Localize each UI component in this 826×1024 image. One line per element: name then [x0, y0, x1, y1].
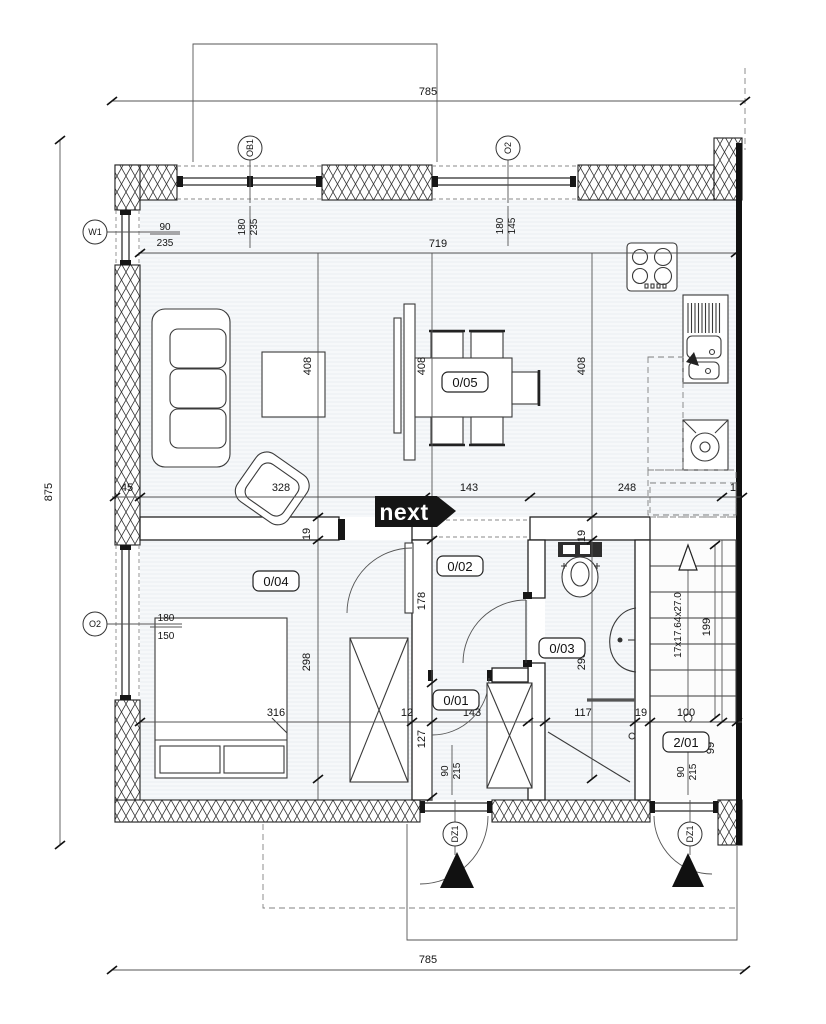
window-o2-left [116, 545, 139, 700]
chair [471, 332, 503, 359]
dim-ob1-w: 180 [237, 218, 248, 235]
dim-overall-bottom: 785 [419, 954, 437, 966]
next-logo-text: next [379, 499, 428, 525]
room-label-stairs: 2/01 [673, 735, 698, 750]
kitchen-sink [683, 295, 728, 383]
dim-overall-top: 785 [419, 86, 437, 98]
door-sill-dz1-main [420, 801, 492, 813]
sofa [152, 309, 230, 467]
dim-ob1-h: 235 [249, 218, 260, 235]
entrance-arrow-main [440, 852, 474, 888]
room-label-bathroom: 0/03 [549, 641, 574, 656]
entrance-arrow-stairs [672, 853, 704, 887]
room-label-hall: 0/01 [443, 693, 468, 708]
dim-12: 12 [401, 707, 413, 719]
chair [471, 417, 503, 444]
dim-w1-h: 235 [157, 238, 174, 249]
dim-depth-2: 408 [416, 357, 428, 375]
dim-wall-19-b: 19 [576, 530, 588, 542]
dim-interior-width: 719 [429, 238, 447, 250]
terrace-outline-top [193, 44, 437, 162]
room-label-living: 0/05 [452, 375, 477, 390]
hall-wardrobe [487, 683, 532, 788]
door-sill-dz1-stairs [650, 801, 718, 813]
tag-w1: W1 [88, 227, 102, 237]
chair [431, 332, 463, 359]
dim-o2-left-h: 150 [158, 631, 175, 642]
dim-19-bath: 19 [635, 707, 647, 719]
dim-100: 100 [677, 707, 695, 719]
dim-19-end: 19 [730, 482, 742, 494]
bed [155, 618, 287, 778]
dim-dz1-stairs-w: 90 [676, 766, 687, 778]
dim-depth-3: 408 [576, 357, 588, 375]
dim-overall-left: 875 [43, 483, 55, 501]
room-label-bedroom: 0/04 [263, 574, 288, 589]
tag-dz1-main: DZ1 [450, 825, 460, 842]
washing-machine [683, 420, 728, 470]
dim-328: 328 [272, 482, 290, 494]
dim-o2-top-h: 145 [507, 217, 518, 234]
right-wall-bar [736, 143, 742, 845]
dim-stairs-formula: 17x17.64x27.0 [673, 592, 684, 658]
dim-stairs-199: 199 [701, 618, 713, 636]
dim-w1-w: 90 [159, 222, 171, 233]
dim-bedroom-298: 298 [301, 653, 313, 671]
chair [512, 372, 538, 404]
coffee-table [262, 352, 325, 417]
tag-dz1-stairs: DZ1 [685, 825, 695, 842]
wardrobe-bedroom [350, 638, 408, 782]
dim-117: 117 [574, 707, 592, 719]
chair [431, 417, 463, 444]
dim-depth-1: 408 [302, 357, 314, 375]
bedroom-furniture [155, 618, 408, 782]
room-label-corridor: 0/02 [447, 559, 472, 574]
dim-248: 248 [618, 482, 636, 494]
dim-316: 316 [267, 707, 285, 719]
window-o2-top [432, 166, 578, 199]
dim-corridor-178: 178 [416, 592, 428, 610]
dim-143: 143 [460, 482, 478, 494]
dim-o2-top-w: 180 [495, 217, 506, 234]
dim-dz1-stairs-h: 215 [688, 763, 699, 780]
floor-plan-canvas: 785 785 875 719 408 408 408 45 328 143 2… [0, 0, 826, 1024]
window-ob1 [177, 166, 322, 199]
dim-wall-19-a: 19 [301, 528, 313, 540]
stove [627, 243, 677, 291]
dim-dz1-main-w: 90 [440, 765, 451, 777]
dim-45: 45 [121, 482, 133, 494]
floor-plan-page: 785 785 875 719 408 408 408 45 328 143 2… [0, 0, 826, 1024]
dim-o2-left-w: 180 [158, 613, 175, 624]
tag-o2-top: O2 [503, 142, 513, 154]
tag-ob1: OB1 [245, 139, 255, 157]
tag-o2-left: O2 [89, 619, 101, 629]
dim-dz1-main-h: 215 [452, 762, 463, 779]
dim-hall-127: 127 [416, 730, 428, 748]
